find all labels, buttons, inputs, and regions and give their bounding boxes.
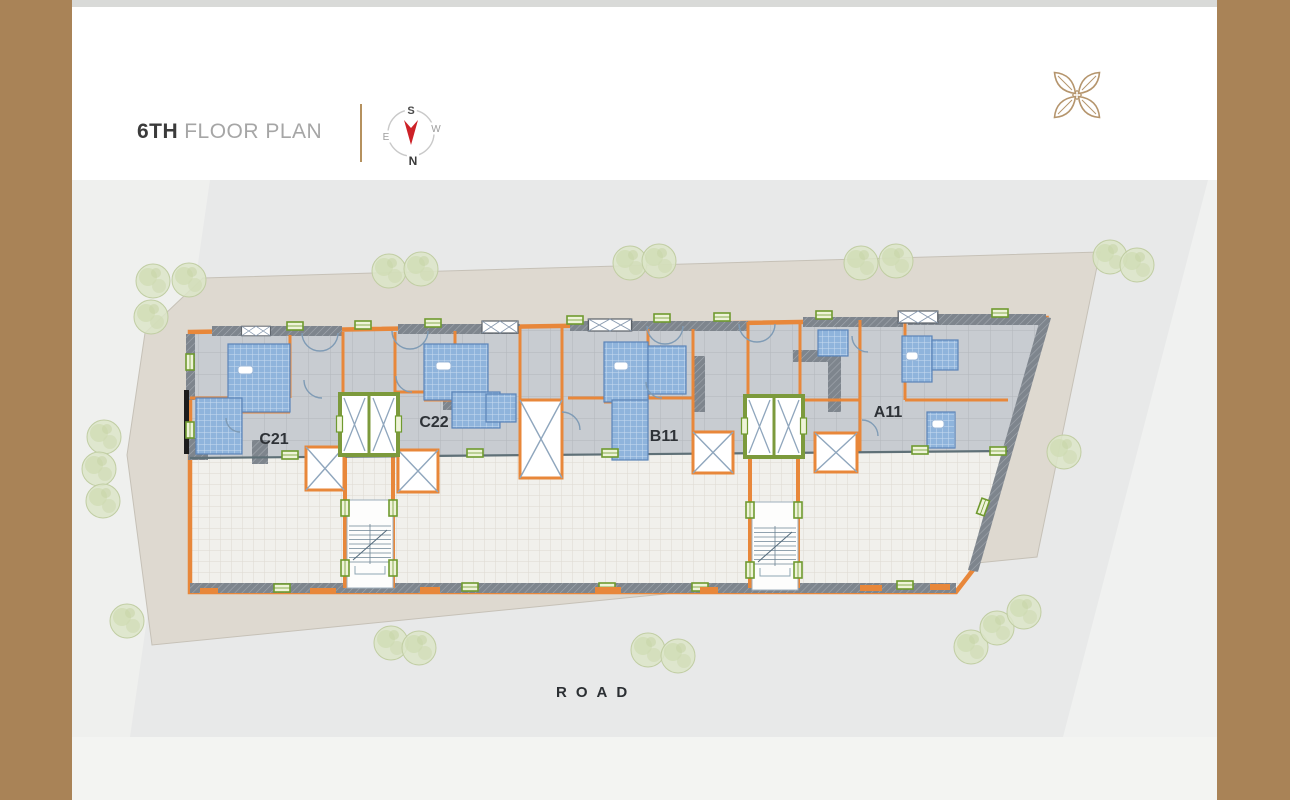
stairwell-west	[347, 500, 393, 588]
unit-label-a11: A11	[874, 404, 903, 421]
road-label: ROAD	[556, 684, 636, 701]
floor-plan-page: 6THFLOOR PLAN S W E N	[0, 0, 1290, 800]
unit-label-b11: B11	[650, 428, 679, 445]
unit-label-c22: C22	[419, 414, 448, 431]
site-plan: C21 C22 B11 A11 ROAD	[0, 0, 1290, 800]
lift-core-west	[337, 394, 402, 455]
unit-label-c21: C21	[259, 431, 288, 448]
stairwell-east	[752, 502, 798, 590]
lift-core-east	[742, 396, 807, 457]
building: C21 C22 B11 A11	[184, 309, 1051, 594]
